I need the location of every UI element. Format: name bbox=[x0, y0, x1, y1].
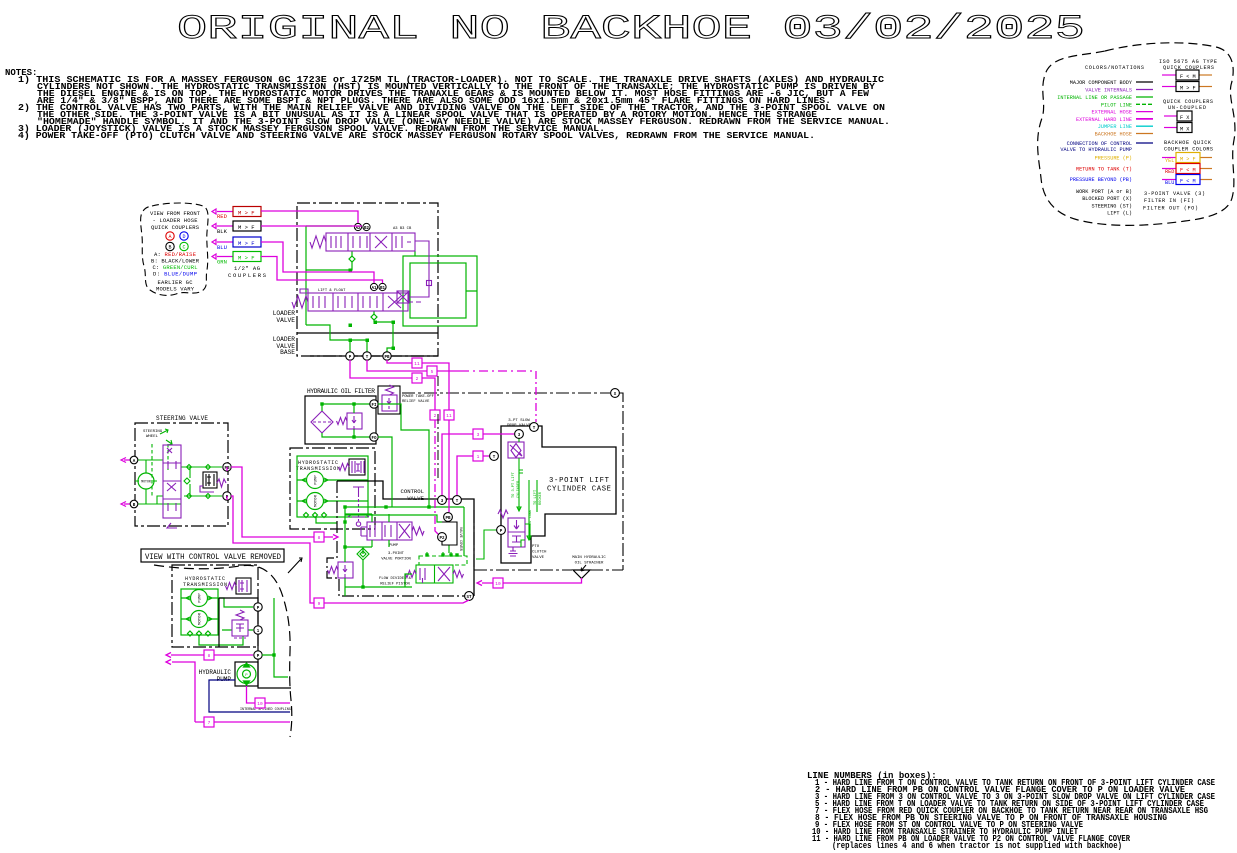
svg-text:5: 5 bbox=[431, 369, 434, 375]
svg-text:CYLINDER CASE: CYLINDER CASE bbox=[547, 486, 611, 494]
svg-text:MOTOR: MOTOR bbox=[141, 480, 151, 484]
svg-text:EXTERNAL HARD LINE: EXTERNAL HARD LINE bbox=[1076, 117, 1132, 123]
svg-text:FILTER IN (FI): FILTER IN (FI) bbox=[1144, 198, 1194, 204]
svg-text:TO 3-PT LIFT: TO 3-PT LIFT bbox=[512, 471, 516, 498]
svg-text:3-POINT LIFT: 3-POINT LIFT bbox=[549, 477, 610, 485]
svg-text:COUPLER COLORS: COUPLER COLORS bbox=[1164, 147, 1213, 153]
svg-text:EXTERNAL HOSE: EXTERNAL HOSE bbox=[1092, 110, 1132, 116]
svg-text:M > F: M > F bbox=[238, 210, 255, 217]
svg-text:CLUTCH: CLUTCH bbox=[532, 551, 547, 555]
svg-text:A2: A2 bbox=[355, 227, 361, 231]
svg-text:BLK: BLK bbox=[217, 228, 228, 235]
svg-text:1: 1 bbox=[477, 454, 480, 460]
svg-text:A: A bbox=[168, 234, 171, 240]
svg-text:VALVE: VALVE bbox=[407, 495, 424, 502]
svg-text:COLORS/NOTATIONS: COLORS/NOTATIONS bbox=[1085, 65, 1144, 71]
svg-text:PB: PB bbox=[445, 517, 451, 521]
svg-text:10: 10 bbox=[495, 581, 501, 587]
svg-text:F < M: F < M bbox=[1180, 168, 1196, 174]
svg-text:TO TANK: TO TANK bbox=[529, 509, 533, 525]
svg-text:- LOADER HOSE: - LOADER HOSE bbox=[153, 217, 199, 224]
svg-text:M > F: M > F bbox=[238, 240, 255, 247]
svg-text:BASE: BASE bbox=[280, 349, 295, 356]
svg-text:VALVE COVER: VALVE COVER bbox=[458, 527, 462, 552]
svg-text:F X: F X bbox=[1180, 115, 1190, 121]
svg-text:B: B bbox=[168, 245, 171, 251]
svg-text:WHEEL: WHEEL bbox=[146, 435, 159, 439]
svg-text:VIEW FROM FRONT: VIEW FROM FRONT bbox=[150, 210, 201, 217]
svg-text:A3 B3 CB: A3 B3 CB bbox=[393, 227, 412, 231]
svg-text:2: 2 bbox=[416, 376, 419, 382]
svg-text:QUICK COUPLERS: QUICK COUPLERS bbox=[151, 224, 200, 231]
svg-text:VALVE INTERNALS: VALVE INTERNALS bbox=[1085, 88, 1132, 94]
svg-text:OIL STRAINER: OIL STRAINER bbox=[575, 562, 604, 566]
svg-text:8: 8 bbox=[318, 535, 321, 541]
svg-text:F < M: F < M bbox=[1180, 179, 1196, 185]
svg-text:RELIEF VALVE: RELIEF VALVE bbox=[402, 400, 430, 404]
svg-text:INTERNAL LINE OR PASSAGE: INTERNAL LINE OR PASSAGE bbox=[1057, 95, 1132, 101]
svg-text:P2: P2 bbox=[439, 537, 445, 541]
svg-text:RED: RED bbox=[1165, 169, 1174, 175]
svg-text:PUMP: PUMP bbox=[199, 593, 203, 603]
svg-text:STEERING VALVE: STEERING VALVE bbox=[156, 415, 208, 422]
svg-text:RED: RED bbox=[217, 213, 228, 220]
svg-text:TO LIFT: TO LIFT bbox=[534, 489, 538, 505]
svg-text:B1: B1 bbox=[380, 287, 386, 291]
svg-text:BACKHOE HOSE: BACKHOE HOSE bbox=[1095, 132, 1132, 138]
svg-text:VALVE: VALVE bbox=[276, 317, 295, 324]
svg-text:1/2" AG: 1/2" AG bbox=[234, 265, 260, 272]
svg-text:DROP VALVE: DROP VALVE bbox=[507, 424, 532, 428]
svg-text:TRANSMISSION: TRANSMISSION bbox=[183, 582, 227, 588]
svg-text:JUMPER LINE: JUMPER LINE bbox=[1098, 124, 1132, 130]
svg-text:BLU: BLU bbox=[217, 244, 227, 251]
svg-text:10: 10 bbox=[257, 701, 263, 707]
svg-text:LOADER: LOADER bbox=[273, 310, 296, 317]
svg-text:A1: A1 bbox=[371, 287, 377, 291]
svg-text:7: 7 bbox=[208, 720, 211, 726]
svg-text:C: C bbox=[182, 245, 185, 251]
svg-text:TRANSMISSION: TRANSMISSION bbox=[296, 466, 340, 472]
svg-text:11: 11 bbox=[446, 413, 452, 419]
svg-text:STEERING: STEERING bbox=[143, 430, 163, 434]
svg-text:3: 3 bbox=[477, 432, 480, 438]
svg-text:9: 9 bbox=[318, 601, 321, 607]
svg-text:VALVE: VALVE bbox=[532, 556, 545, 560]
svg-text:M X: M X bbox=[1180, 127, 1190, 133]
svg-text:MAJOR COMPONENT BODY: MAJOR COMPONENT BODY bbox=[1070, 80, 1133, 86]
svg-text:4) POWER TAKE-OFF (PTO) CLUTCH: 4) POWER TAKE-OFF (PTO) CLUTCH VALVE AND… bbox=[18, 131, 815, 141]
svg-text:PILOT LINE: PILOT LINE bbox=[1101, 102, 1132, 108]
svg-text:ST: ST bbox=[466, 596, 472, 600]
svg-text:LOADER: LOADER bbox=[273, 336, 296, 343]
svg-text:M > F: M > F bbox=[1180, 157, 1196, 163]
svg-text:STEERING (ST): STEERING (ST) bbox=[1092, 203, 1132, 209]
svg-text:WORK PORT (A or B): WORK PORT (A or B) bbox=[1076, 189, 1132, 195]
svg-text:D: D bbox=[182, 234, 185, 240]
svg-text:GRN: GRN bbox=[217, 259, 227, 266]
svg-text:PTO: PTO bbox=[532, 545, 540, 549]
svg-text:MOTOR: MOTOR bbox=[315, 494, 319, 507]
svg-text:FI: FI bbox=[371, 404, 377, 408]
svg-text:UN-COUPLED: UN-COUPLED bbox=[1168, 105, 1206, 111]
svg-text:PRESSURE BEYOND (PB): PRESSURE BEYOND (PB) bbox=[1070, 177, 1132, 183]
svg-text:FLOW DIVIDER &: FLOW DIVIDER & bbox=[379, 577, 412, 581]
svg-text:BACKHOE QUICK: BACKHOE QUICK bbox=[1164, 140, 1212, 146]
svg-text:HYDRAULIC: HYDRAULIC bbox=[199, 669, 232, 676]
svg-text:MAIN HYDRAULIC: MAIN HYDRAULIC bbox=[572, 556, 606, 560]
svg-text:3-POINT VALVE (3): 3-POINT VALVE (3) bbox=[1144, 191, 1205, 197]
svg-text:LIFT & FLOAT: LIFT & FLOAT bbox=[318, 289, 346, 293]
svg-text:VALVE PORTION: VALVE PORTION bbox=[381, 558, 411, 562]
svg-text:3-POINT: 3-POINT bbox=[388, 552, 405, 556]
svg-text:MODELS VARY: MODELS VARY bbox=[156, 286, 195, 293]
svg-text:VALVE TO HYDRAULIC PUMP: VALVE TO HYDRAULIC PUMP bbox=[1060, 147, 1132, 153]
svg-text:RETURN TO TANK (T): RETURN TO TANK (T) bbox=[1076, 166, 1132, 172]
svg-text:LIFT (L): LIFT (L) bbox=[1107, 211, 1132, 217]
svg-text:PRESSURE (P): PRESSURE (P) bbox=[1095, 156, 1132, 162]
svg-text:POWER TAKE-OFF: POWER TAKE-OFF bbox=[402, 395, 435, 399]
svg-text:CONTROL: CONTROL bbox=[401, 488, 425, 495]
svg-text:M > F: M > F bbox=[238, 255, 255, 262]
svg-text:CYLINDER: CYLINDER bbox=[517, 480, 521, 498]
svg-text:F < M: F < M bbox=[1180, 74, 1196, 80]
svg-text:PB: PB bbox=[384, 356, 390, 360]
svg-text:3-PT SLOW: 3-PT SLOW bbox=[508, 419, 530, 423]
svg-text:BLOCKED PORT (X): BLOCKED PORT (X) bbox=[1082, 196, 1132, 202]
svg-text:PUMP: PUMP bbox=[315, 475, 319, 485]
svg-text:VIEW WITH CONTROL VALVE REMOVE: VIEW WITH CONTROL VALVE REMOVED bbox=[145, 552, 281, 562]
svg-text:BLU: BLU bbox=[1165, 180, 1174, 186]
svg-text:(replaces lines 4 and 6 when t: (replaces lines 4 and 6 when tractor is … bbox=[832, 841, 1122, 851]
svg-text:8: 8 bbox=[208, 653, 211, 659]
svg-text:COUPLERS: COUPLERS bbox=[228, 272, 267, 279]
svg-text:D: BLUE/DUMP: D: BLUE/DUMP bbox=[153, 271, 197, 278]
svg-text:ORIGINAL NO BACKHOE 03/02/202: ORIGINAL NO BACKHOE 03/02/2025 bbox=[177, 11, 1085, 49]
svg-text:FO: FO bbox=[371, 437, 377, 441]
svg-text:2: 2 bbox=[434, 413, 437, 419]
svg-text:M > F: M > F bbox=[1180, 86, 1196, 92]
svg-text:MOTOR: MOTOR bbox=[199, 612, 203, 625]
svg-text:FILTER OUT (FO): FILTER OUT (FO) bbox=[1143, 206, 1198, 212]
svg-text:M > F: M > F bbox=[238, 224, 255, 231]
svg-text:PUMP: PUMP bbox=[389, 544, 399, 548]
svg-text:ROCKER: ROCKER bbox=[539, 491, 543, 505]
svg-text:B2: B2 bbox=[364, 227, 370, 231]
svg-text:11: 11 bbox=[414, 361, 420, 367]
svg-text:HYDRAULIC OIL FILTER: HYDRAULIC OIL FILTER bbox=[307, 388, 375, 395]
